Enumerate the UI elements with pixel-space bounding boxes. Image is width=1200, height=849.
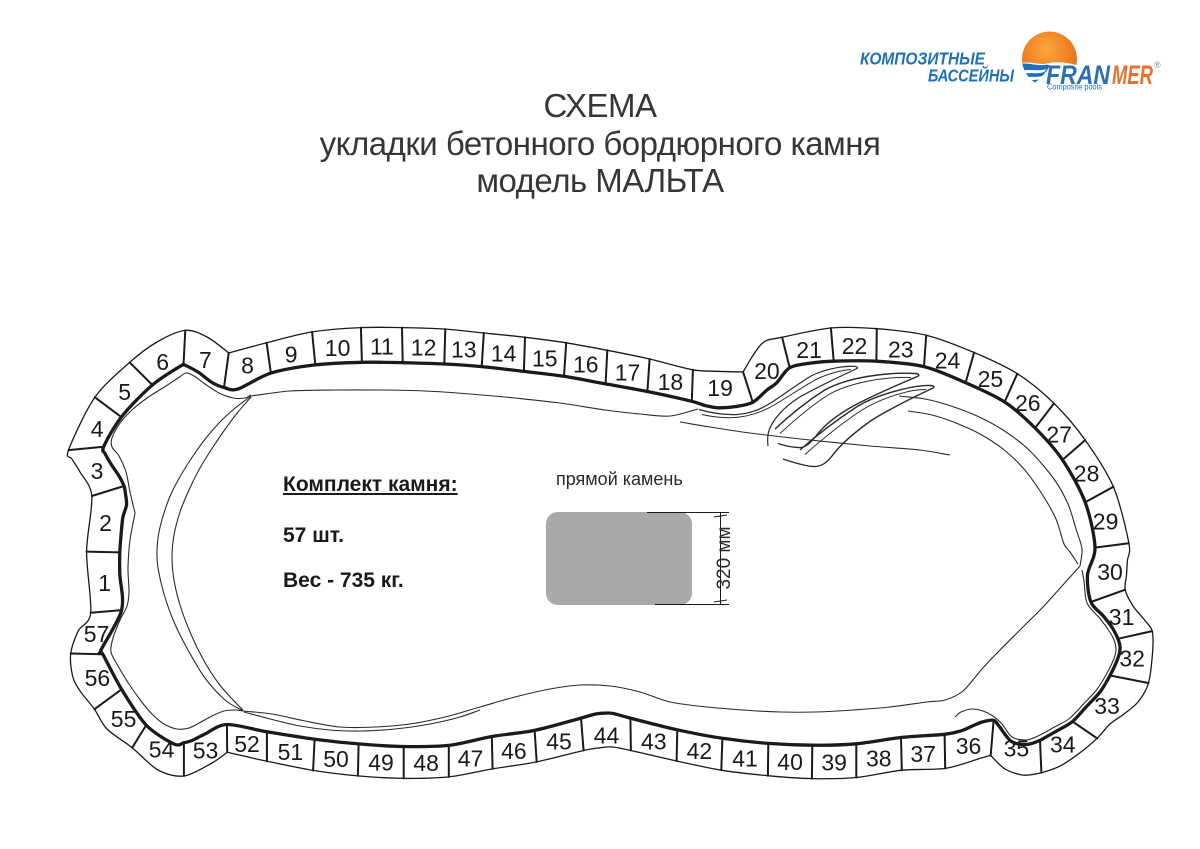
- svg-text:17: 17: [615, 360, 641, 386]
- svg-text:41: 41: [732, 745, 758, 771]
- svg-text:30: 30: [1097, 559, 1123, 585]
- svg-text:46: 46: [501, 738, 527, 764]
- svg-text:6: 6: [156, 349, 169, 375]
- svg-text:3: 3: [91, 458, 104, 484]
- svg-text:2: 2: [99, 510, 112, 536]
- svg-text:32: 32: [1119, 646, 1145, 672]
- svg-text:39: 39: [821, 750, 847, 776]
- svg-text:11: 11: [370, 334, 394, 360]
- svg-text:15: 15: [532, 345, 558, 371]
- svg-text:38: 38: [866, 746, 892, 772]
- svg-text:26: 26: [1015, 390, 1041, 416]
- svg-text:49: 49: [368, 750, 394, 776]
- svg-text:16: 16: [573, 352, 599, 378]
- svg-text:34: 34: [1050, 732, 1076, 758]
- svg-text:27: 27: [1046, 421, 1072, 447]
- svg-text:40: 40: [777, 749, 803, 775]
- svg-text:10: 10: [325, 335, 351, 361]
- svg-text:13: 13: [451, 337, 477, 363]
- svg-text:52: 52: [234, 731, 260, 757]
- svg-text:45: 45: [546, 729, 572, 755]
- svg-text:43: 43: [641, 728, 667, 754]
- svg-text:44: 44: [594, 723, 620, 749]
- svg-text:57: 57: [84, 621, 110, 647]
- svg-text:35: 35: [1004, 736, 1030, 762]
- svg-text:54: 54: [149, 736, 175, 762]
- svg-text:51: 51: [278, 739, 304, 765]
- svg-text:53: 53: [193, 737, 219, 763]
- svg-text:36: 36: [956, 733, 982, 759]
- svg-text:50: 50: [323, 746, 349, 772]
- svg-text:37: 37: [910, 741, 936, 767]
- svg-text:14: 14: [491, 341, 517, 367]
- svg-text:21: 21: [796, 337, 822, 363]
- svg-text:19: 19: [707, 375, 733, 401]
- svg-text:23: 23: [888, 336, 914, 362]
- svg-text:42: 42: [687, 738, 713, 764]
- svg-text:33: 33: [1094, 693, 1120, 719]
- svg-text:29: 29: [1093, 508, 1119, 534]
- svg-text:28: 28: [1074, 461, 1100, 487]
- svg-text:12: 12: [411, 334, 437, 360]
- svg-text:5: 5: [118, 379, 131, 405]
- svg-text:8: 8: [241, 353, 254, 379]
- svg-text:48: 48: [413, 750, 439, 776]
- svg-text:25: 25: [978, 366, 1004, 392]
- svg-text:55: 55: [111, 706, 137, 732]
- svg-text:18: 18: [658, 369, 684, 395]
- svg-text:9: 9: [285, 342, 298, 368]
- svg-text:4: 4: [91, 416, 104, 442]
- svg-text:31: 31: [1109, 604, 1135, 630]
- svg-text:20: 20: [754, 358, 780, 384]
- svg-text:22: 22: [842, 333, 868, 359]
- svg-text:56: 56: [85, 665, 111, 691]
- svg-text:7: 7: [199, 347, 212, 373]
- svg-text:1: 1: [98, 570, 111, 596]
- svg-text:24: 24: [935, 348, 961, 374]
- svg-text:47: 47: [458, 745, 484, 771]
